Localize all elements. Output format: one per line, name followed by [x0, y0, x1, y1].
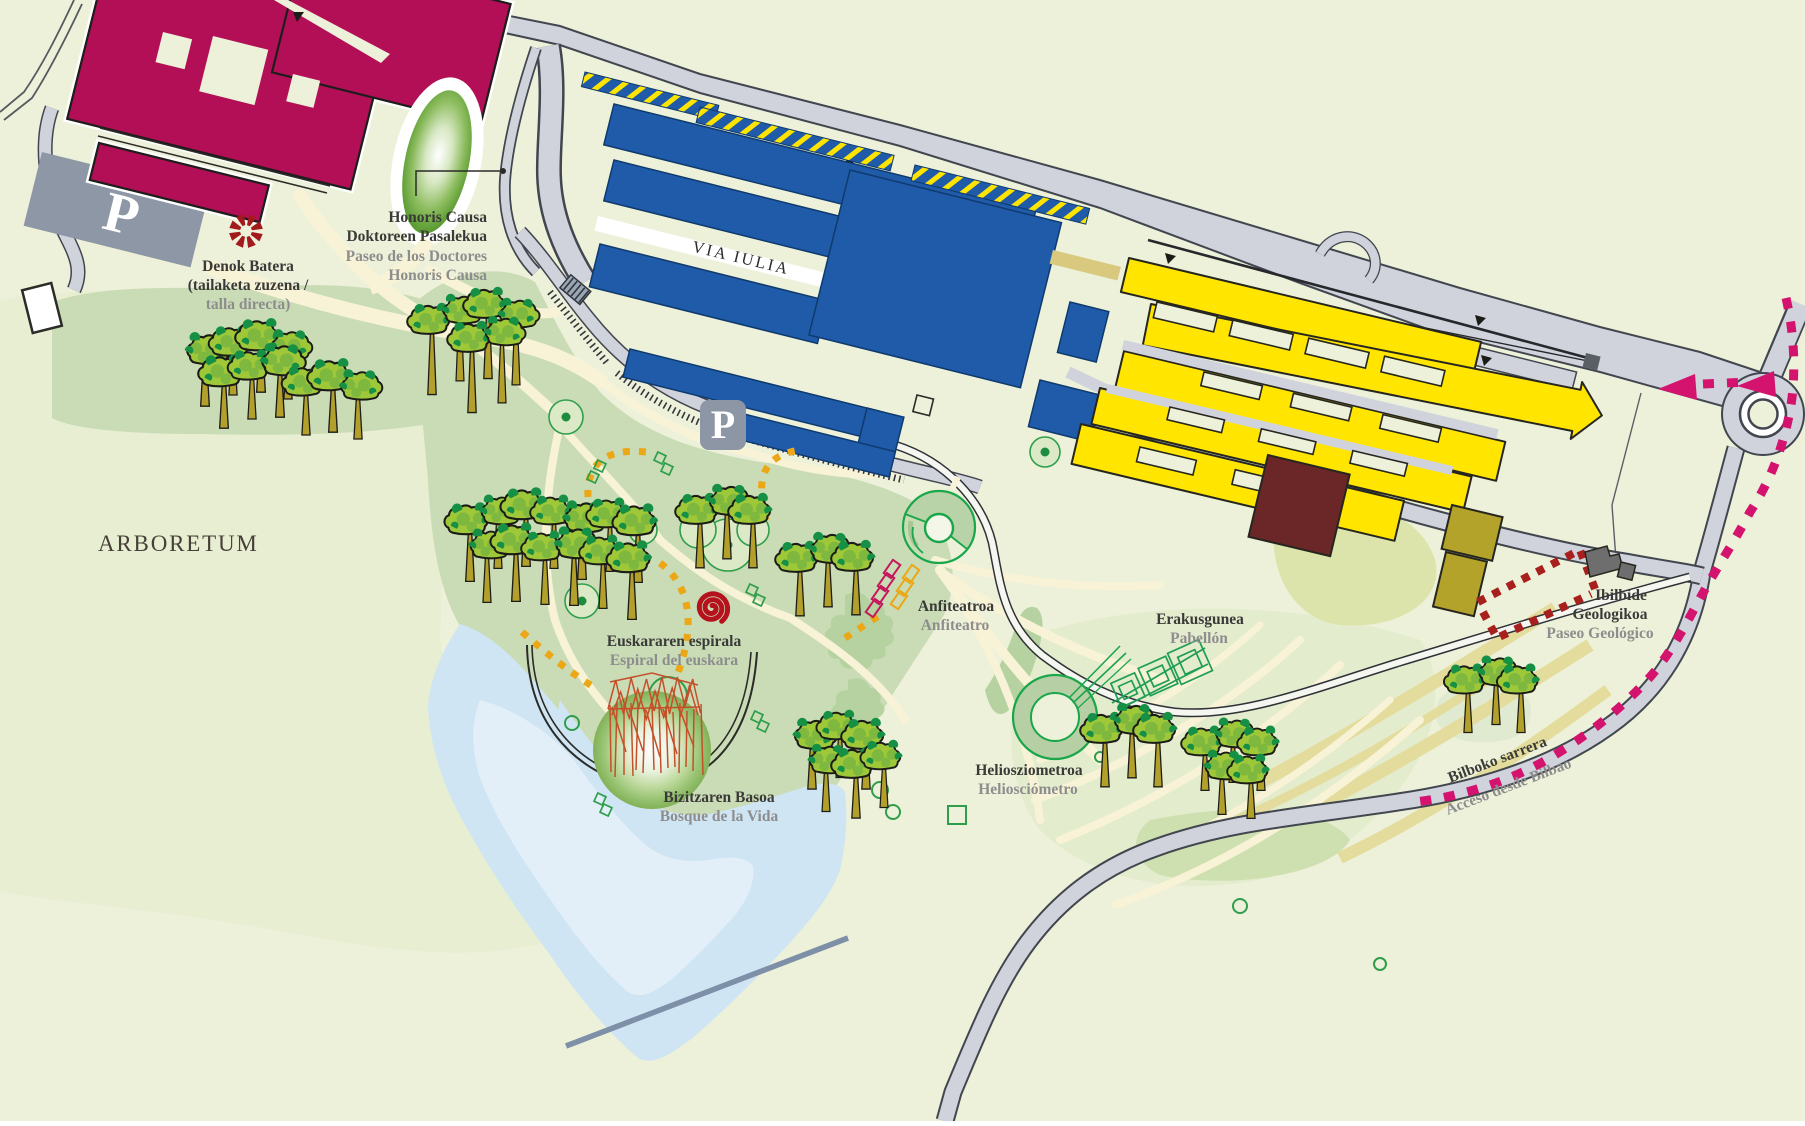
svg-text:Heliosziometroa: Heliosziometroa	[975, 762, 1083, 779]
svg-text:Espiral del euskara: Espiral del euskara	[610, 652, 739, 669]
svg-text:Heliosciómetro: Heliosciómetro	[978, 781, 1078, 798]
svg-text:Anfiteatroa: Anfiteatroa	[918, 598, 995, 615]
svg-text:Ibilbide: Ibilbide	[1595, 587, 1647, 604]
svg-text:Bosque de la Vida: Bosque de la Vida	[660, 808, 779, 825]
svg-text:Paseo Geológico: Paseo Geológico	[1546, 625, 1653, 642]
svg-text:talla directa): talla directa)	[206, 296, 291, 313]
svg-text:Paseo de los Doctores: Paseo de los Doctores	[346, 248, 487, 265]
svg-text:Bizitzaren Basoa: Bizitzaren Basoa	[663, 789, 774, 806]
svg-text:Pabellón: Pabellón	[1170, 630, 1228, 647]
svg-text:Anfiteatro: Anfiteatro	[921, 617, 990, 634]
svg-text:Doktoreen Pasalekua: Doktoreen Pasalekua	[346, 228, 487, 245]
svg-text:P: P	[711, 402, 735, 447]
svg-text:(tailaketa zuzena /: (tailaketa zuzena /	[188, 277, 309, 294]
svg-text:Geologikoa: Geologikoa	[1573, 606, 1648, 623]
svg-text:Euskararen espirala: Euskararen espirala	[607, 633, 742, 650]
svg-text:ARBORETUM: ARBORETUM	[98, 531, 259, 556]
svg-text:Denok Batera: Denok Batera	[202, 258, 294, 275]
svg-text:Honoris Causa: Honoris Causa	[388, 209, 487, 226]
svg-text:Honoris Causa: Honoris Causa	[388, 267, 487, 284]
svg-text:Erakusgunea: Erakusgunea	[1156, 611, 1244, 628]
